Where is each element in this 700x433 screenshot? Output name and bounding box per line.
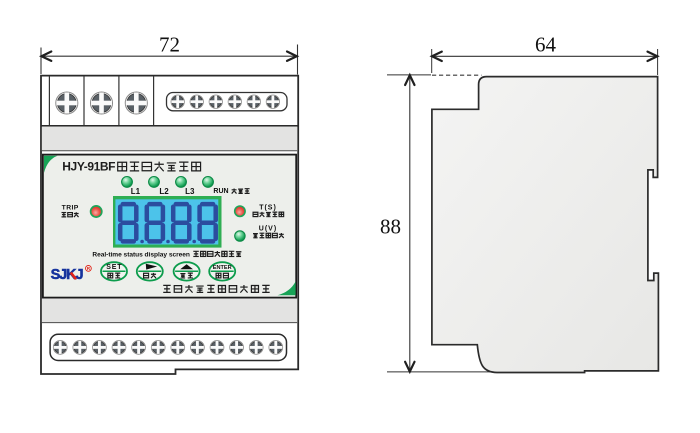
svg-text:L3: L3 [185,187,195,196]
svg-text:SET: SET [106,264,122,271]
svg-text:T(S): T(S) [259,205,277,212]
svg-text:HJY-91BF: HJY-91BF [62,160,115,174]
svg-text:L1: L1 [131,187,141,196]
svg-text:Real-time status display scree: Real-time status display screen [92,251,189,258]
svg-text:88: 88 [380,215,401,239]
svg-text:L2: L2 [159,187,169,196]
svg-text:72: 72 [159,32,180,56]
svg-text:64: 64 [535,32,557,56]
svg-text:U(V): U(V) [259,226,277,233]
svg-text:ENTER: ENTER [213,265,232,271]
svg-text:SJKJ: SJKJ [51,267,84,283]
svg-text:RUN: RUN [213,188,228,195]
svg-text:TRIP: TRIP [62,204,79,211]
